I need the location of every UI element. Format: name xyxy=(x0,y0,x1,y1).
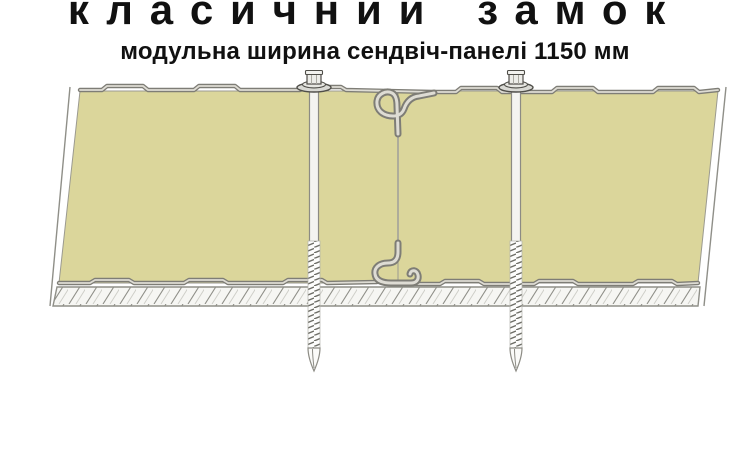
support-member-hatched xyxy=(53,287,700,306)
diagram-page: класичний замок модульна ширина сендвіч-… xyxy=(0,0,750,450)
panel-right-core xyxy=(398,91,718,283)
page-subtitle: модульна ширина сендвіч-панелі 1150 мм xyxy=(0,38,750,66)
bottom-sheet-right xyxy=(413,281,698,284)
panel-joint-diagram xyxy=(0,0,750,450)
page-title: класичний замок xyxy=(0,0,750,34)
panel-left-core xyxy=(59,91,398,283)
